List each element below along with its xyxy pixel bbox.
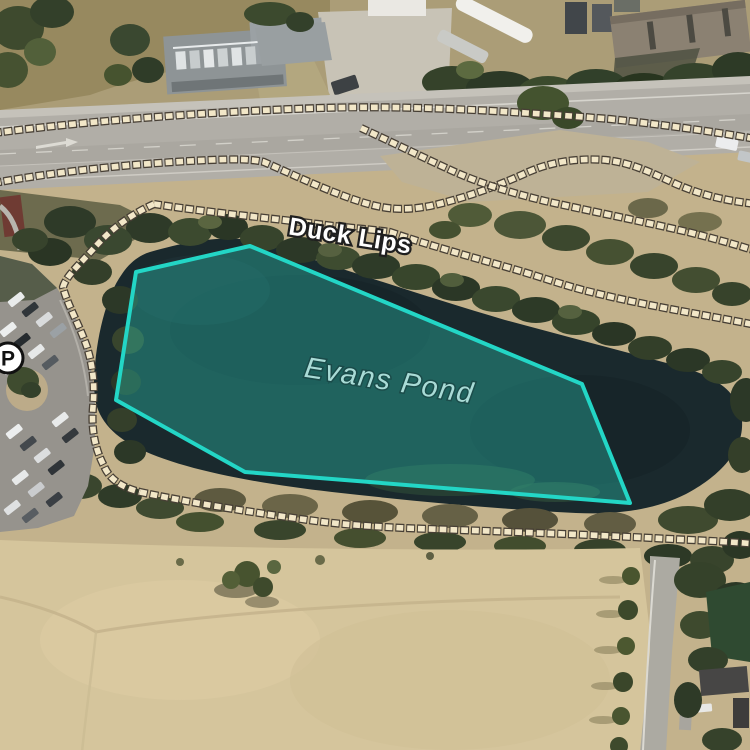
dirt-field <box>0 540 664 750</box>
parking-marker[interactable]: P <box>0 343 23 373</box>
parking-icon: P <box>1 348 15 371</box>
satellite-map[interactable]: Duck Lips Evans Pond P <box>0 0 750 750</box>
